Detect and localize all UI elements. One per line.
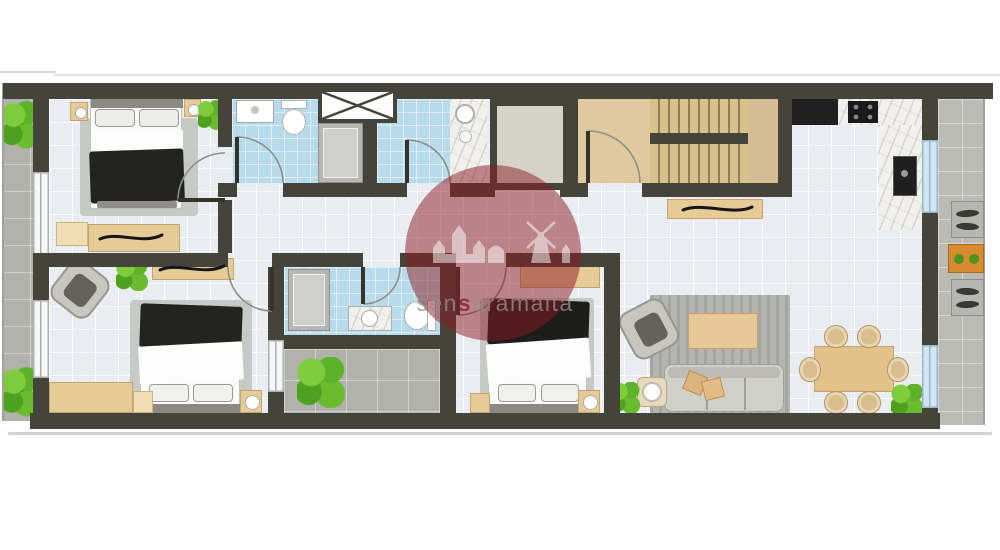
shower bbox=[318, 123, 363, 183]
watermark-text-prefix: sen bbox=[416, 290, 458, 316]
nightstand bbox=[70, 102, 88, 121]
wardrobe bbox=[49, 382, 133, 413]
faucet bbox=[251, 106, 259, 114]
wall-bedroom2-top bbox=[33, 253, 228, 267]
floorplan-image: sensaramalta bbox=[0, 0, 1000, 550]
watermark-skyline-icon bbox=[428, 203, 578, 268]
bed-blanket bbox=[89, 148, 185, 203]
foot-bench bbox=[97, 201, 177, 208]
wall-right bbox=[922, 408, 938, 418]
headboard bbox=[91, 98, 183, 108]
dining-chair bbox=[857, 325, 881, 348]
wall-left bbox=[33, 99, 49, 172]
wall-bedroom2-right bbox=[268, 392, 284, 413]
pillow bbox=[95, 109, 135, 127]
outdoor-bench bbox=[951, 201, 984, 238]
wall-bedroom2-top bbox=[272, 253, 284, 267]
wall-left bbox=[33, 265, 49, 300]
dining-chair bbox=[824, 325, 848, 348]
pillow bbox=[193, 384, 233, 402]
sofa bbox=[664, 364, 784, 412]
stair-landing bbox=[576, 99, 650, 183]
outdoor-bench bbox=[951, 279, 984, 316]
window bbox=[33, 172, 49, 265]
wall-right bbox=[922, 99, 938, 140]
duvet bbox=[138, 341, 244, 384]
wall-bathrooms-bottom bbox=[283, 183, 407, 197]
bed-double-2 bbox=[140, 305, 240, 413]
cushion bbox=[701, 377, 725, 401]
round-basin bbox=[459, 130, 472, 143]
shower bbox=[288, 269, 330, 331]
plant bbox=[4, 100, 36, 150]
bed-double-1 bbox=[90, 97, 182, 209]
dining-chair bbox=[857, 391, 881, 414]
tv-dresser bbox=[88, 224, 180, 252]
cooktop bbox=[848, 101, 878, 123]
nightstand bbox=[578, 390, 600, 413]
pillow bbox=[149, 384, 189, 402]
nightstand bbox=[470, 393, 490, 413]
vent-shaft bbox=[318, 88, 397, 123]
window bbox=[268, 340, 284, 392]
page-edge-line bbox=[54, 74, 1000, 76]
coffee-table bbox=[688, 313, 758, 349]
wall-right bbox=[922, 213, 938, 345]
sofa-back bbox=[668, 367, 780, 378]
stair-landing-right bbox=[748, 99, 778, 183]
pillow bbox=[498, 384, 536, 402]
wall-bathroom-divider bbox=[363, 123, 377, 183]
pillow bbox=[541, 384, 579, 402]
wall-bathroom3-top bbox=[284, 253, 363, 267]
watermark-text: sensaramalta bbox=[400, 290, 590, 316]
outdoor-planter bbox=[948, 244, 984, 273]
dining-chair bbox=[799, 357, 821, 382]
toilet-tank bbox=[281, 100, 307, 109]
plant bbox=[4, 366, 36, 418]
tv-console bbox=[667, 199, 763, 219]
wall-top bbox=[3, 83, 993, 99]
watermark-text-suffix: aramalta bbox=[472, 290, 573, 316]
page-edge-line bbox=[0, 71, 56, 73]
kitchen-window bbox=[922, 140, 938, 213]
wall-hall-top bbox=[642, 183, 792, 197]
plant bbox=[297, 357, 345, 408]
wall-bathroom3-bottom bbox=[284, 335, 440, 349]
wall-bedroom2-right bbox=[268, 267, 284, 340]
wall-bedroom1-right bbox=[218, 200, 232, 253]
drawer-unit bbox=[133, 391, 153, 413]
stair-handrail bbox=[650, 133, 748, 144]
kitchen-counter-black bbox=[792, 99, 838, 125]
sofa-seam bbox=[744, 378, 746, 410]
dining-chair bbox=[824, 391, 848, 414]
pillow bbox=[139, 109, 179, 127]
duvet bbox=[486, 337, 592, 384]
wall-bottom bbox=[30, 413, 940, 429]
wall-left bbox=[33, 378, 49, 418]
watermark-text-highlight: s bbox=[458, 290, 472, 316]
wall-bedroom3-right bbox=[604, 253, 620, 413]
terrace-door-glass bbox=[922, 345, 938, 408]
sideboard bbox=[56, 222, 88, 246]
page-edge-line bbox=[8, 432, 992, 435]
nightstand bbox=[240, 390, 262, 413]
wall-bedroom1-right bbox=[218, 99, 232, 147]
dining-table bbox=[814, 346, 894, 392]
sink-bowl bbox=[361, 310, 378, 327]
side-table bbox=[637, 377, 667, 407]
wall-bathrooms-bottom bbox=[218, 183, 237, 197]
toilet bbox=[282, 109, 306, 135]
dining-chair bbox=[887, 357, 909, 382]
wall-stairs-right bbox=[778, 99, 792, 197]
kitchen-faucet bbox=[901, 170, 908, 177]
round-basin bbox=[455, 104, 475, 124]
window bbox=[33, 300, 49, 378]
